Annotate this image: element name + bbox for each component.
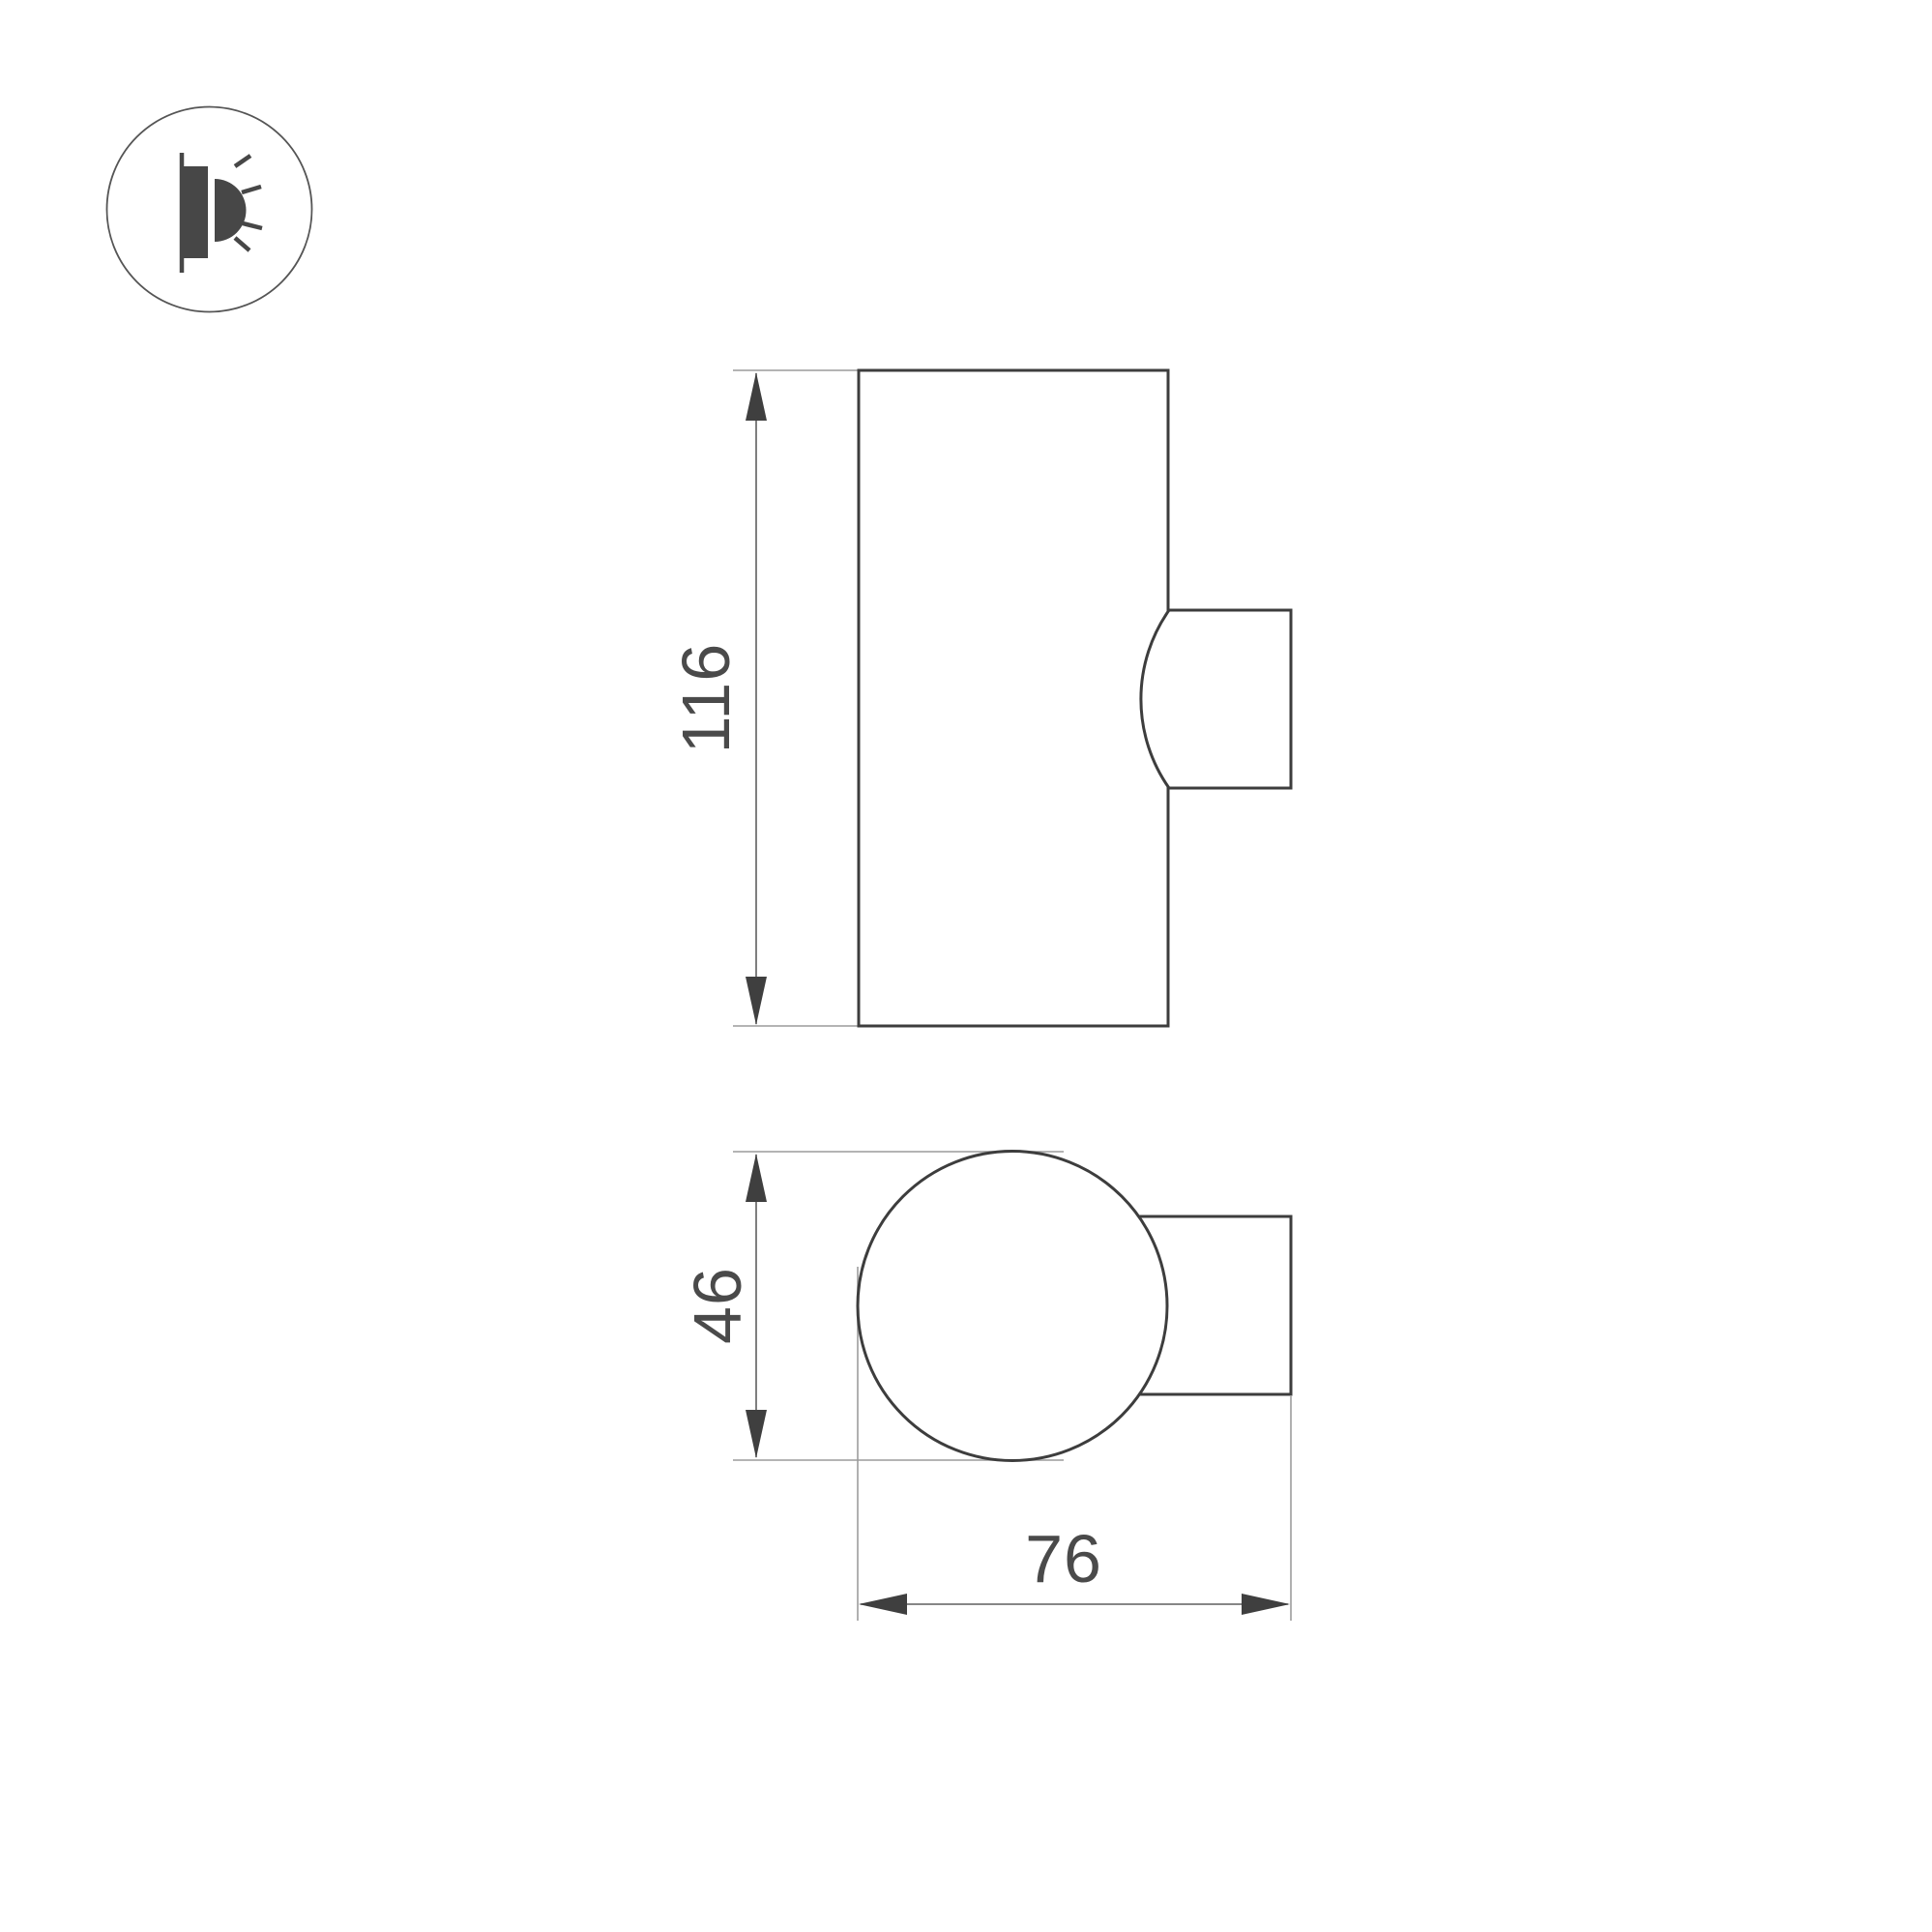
arrow-diameter-down	[746, 1410, 767, 1458]
profile-view-wall-bracket	[1139, 1216, 1291, 1394]
icon-lamp-body	[184, 166, 208, 258]
arrow-diameter-up	[746, 1154, 767, 1202]
front-view-wall-bracket	[1141, 610, 1291, 788]
icon-light-beam	[215, 179, 247, 242]
arrow-depth-right	[1242, 1594, 1290, 1615]
icon-ring	[107, 107, 312, 312]
icon-ray-bottom	[235, 238, 249, 250]
dimension-label-depth: 76	[957, 1525, 1170, 1593]
icon-ray-lower	[243, 223, 262, 228]
profile-view-cylinder-circle	[858, 1152, 1167, 1461]
arrow-depth-left	[859, 1594, 907, 1615]
arrow-height-up	[746, 372, 767, 421]
icon-solid-group	[184, 166, 247, 258]
icon-ray-top	[235, 156, 250, 166]
wall-lamp-icon	[107, 107, 312, 312]
dimension-label-diameter: 46	[684, 1199, 751, 1412]
dimension-drawing	[0, 0, 1932, 1932]
dimension-label-height: 116	[672, 592, 740, 805]
front-view-cylinder-body	[859, 370, 1168, 1026]
icon-ray-upper	[242, 187, 261, 192]
profile-view	[858, 1152, 1291, 1461]
arrow-height-down	[746, 977, 767, 1025]
front-view	[859, 370, 1291, 1026]
